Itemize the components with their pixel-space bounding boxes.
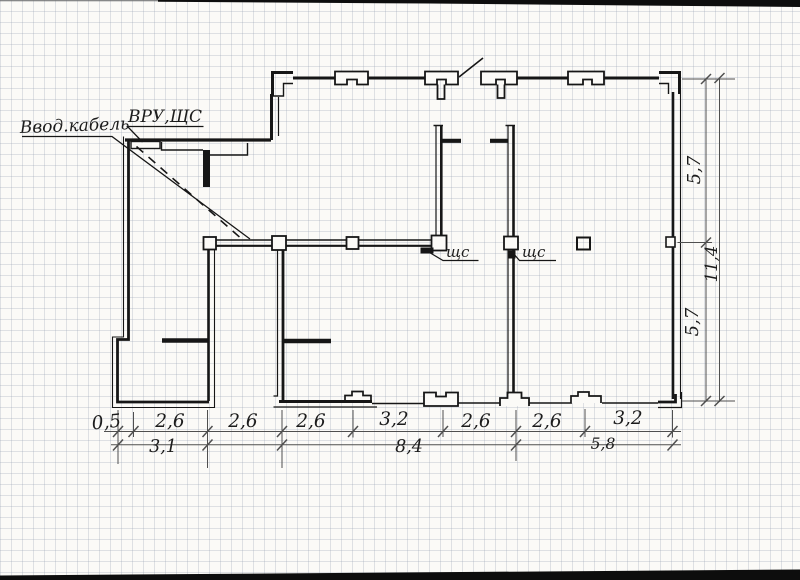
dim-0-5: 0,5 — [91, 411, 122, 435]
dim-2-6-a: 2,6 — [154, 411, 185, 432]
dim-5-7-upper: 5,7 — [684, 155, 705, 184]
junction-square-4 — [432, 236, 447, 251]
mid-room-left-wall-outer — [274, 250, 378, 407]
dim-11-4-total: 11,4 — [702, 246, 721, 283]
cable-entry-label: Ввод.кабель — [18, 114, 129, 138]
electrical-items — [131, 142, 590, 259]
vru-label: ВРУ,ЩС — [127, 107, 202, 127]
shchs-label-1: щс — [446, 243, 470, 261]
dim-2-6-b: 2,6 — [227, 411, 258, 432]
annotations: Ввод.кабель ВРУ,ЩС щс щс — [18, 107, 556, 261]
window-piers — [335, 72, 604, 407]
dim-2-6-c: 2,6 — [295, 411, 326, 432]
bottom-sill-3 — [571, 392, 601, 403]
floor-plan-drawing: Ввод.кабель ВРУ,ЩС щс щс 0,5 2,6 2,6 2,6… — [0, 0, 800, 580]
dimensions-bottom: 0,5 2,6 2,6 2,6 3,2 2,6 2,6 3,2 3,1 8,4 … — [91, 408, 681, 468]
bottom-wall2-junction — [500, 393, 529, 407]
junction-square-2 — [272, 236, 286, 250]
left-wall-inner — [118, 139, 210, 402]
top-door-swing-line — [459, 58, 483, 77]
top-pier-3 — [481, 72, 517, 85]
top-left-corner — [273, 73, 294, 97]
shchs-panel-mark-1 — [421, 248, 434, 254]
dimensions-right: 5,7 11,4 5,7 — [678, 73, 736, 406]
top-pier-3-stem — [498, 85, 505, 99]
vestibule-recess-right — [210, 143, 248, 155]
vestibule-panel-bar — [203, 150, 210, 187]
graph-paper-sheet: Ввод.кабель ВРУ,ЩС щс щс 0,5 2,6 2,6 2,6… — [0, 0, 800, 580]
dim-5-8: 5,8 — [591, 435, 616, 453]
dim-2-6-d: 2,6 — [460, 411, 491, 432]
dim-8-4: 8,4 — [395, 437, 423, 457]
top-pier-1 — [335, 72, 368, 85]
scan-band-bottom — [0, 570, 800, 580]
dim-3-2-b: 3,2 — [613, 408, 642, 429]
top-pier-2-stem — [438, 85, 445, 100]
floor-box-square — [577, 238, 590, 250]
vestibule-recess-left — [162, 142, 204, 150]
cable-route-dashed-line — [137, 147, 244, 241]
vru-panel-box — [131, 142, 160, 149]
dim-right-ticks — [701, 73, 725, 406]
junction-square-3 — [347, 237, 359, 249]
top-left-corner-inner — [273, 84, 293, 97]
bottom-right-corner-outer — [658, 392, 682, 408]
top-right-corner-inner — [659, 84, 669, 95]
top-pier-2 — [425, 72, 458, 85]
outer-walls — [272, 58, 682, 408]
right-wall-tick — [666, 237, 675, 247]
dim-3-1: 3,1 — [149, 437, 177, 457]
left-rooms — [113, 137, 272, 408]
dim-3-2-a: 3,2 — [379, 409, 408, 430]
junction-square-1 — [204, 237, 217, 250]
interior-walls — [204, 126, 519, 408]
dim-5-7-lower: 5,7 — [682, 307, 703, 336]
dim-2-6-e: 2,6 — [531, 411, 562, 432]
shchs-label-2: щс — [522, 243, 546, 261]
bottom-pier-2 — [424, 393, 458, 407]
scan-band-top — [158, 0, 800, 7]
junction-square-5 — [504, 237, 518, 250]
top-pier-4 — [568, 72, 604, 85]
cable-entry-leader — [22, 137, 250, 240]
